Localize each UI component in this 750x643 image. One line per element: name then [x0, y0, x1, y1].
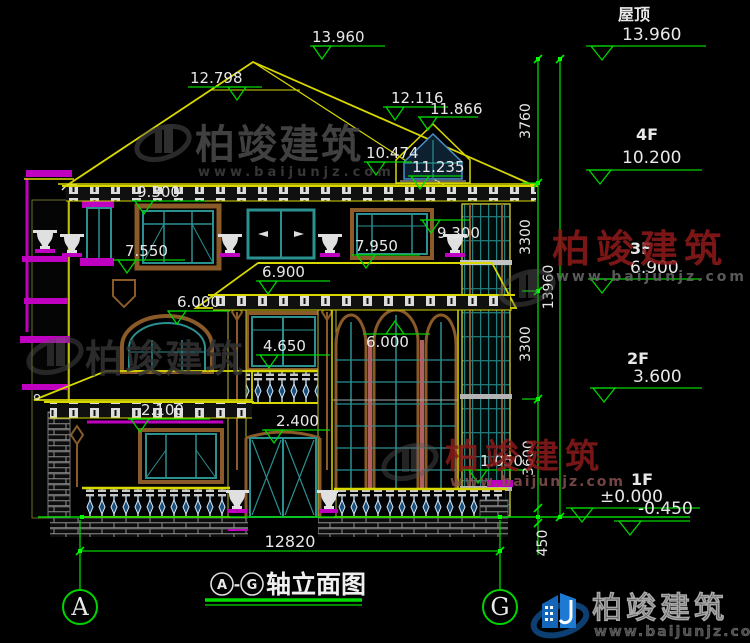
- mark-value: 6.000: [366, 333, 409, 351]
- mark-value: 6.000: [177, 293, 220, 311]
- watermark-brand: 柏竣建筑: [85, 337, 245, 381]
- mark-value: 9.300: [437, 224, 480, 242]
- mark-value: 11.866: [430, 100, 483, 118]
- title-axis-start: A: [217, 578, 227, 593]
- cad-background: [0, 0, 750, 643]
- vdim-3760: 3760: [518, 103, 534, 139]
- watermark-brand: 柏竣建筑: [445, 437, 605, 477]
- title-axis-end: G: [247, 578, 258, 593]
- elevation-drawing: 13.960 12.798 12.116 11.866 10.474 11.23…: [0, 0, 750, 643]
- mark-value: 12.798: [190, 69, 243, 87]
- mark-value: 2.100: [141, 401, 184, 419]
- juliet-balustrade: [236, 371, 328, 403]
- mark-value: 13.960: [312, 28, 365, 46]
- vdim-450: 450: [535, 530, 551, 557]
- watermark-brand: 柏竣建筑: [195, 122, 363, 168]
- mark-value: 6.900: [262, 263, 305, 281]
- mark-value: 11.235: [412, 158, 465, 176]
- vdim-3300-lower: 3300: [518, 326, 534, 362]
- level-value-below: -0.450: [638, 499, 693, 519]
- title-text: 轴立面图: [266, 570, 366, 599]
- mark-value: 4.650: [263, 337, 306, 355]
- mark-value: 7.550: [125, 242, 168, 260]
- level-label: 4F: [636, 125, 658, 144]
- axis-letter: A: [70, 593, 89, 621]
- level-label: 屋顶: [618, 5, 650, 24]
- footer-brand-logo: 柏竣建筑 www.baijunjz.com: [530, 591, 750, 641]
- mark-value: 9.300: [137, 183, 180, 201]
- watermark-url: www.baijunjz.com: [198, 165, 395, 180]
- mark-value: 10.474: [366, 144, 419, 162]
- watermark-url: www.baijunjz.com: [556, 269, 747, 285]
- magenta-cornice: [26, 170, 72, 177]
- watermark-brand: 柏竣建筑: [552, 227, 728, 271]
- level-label: 2F: [627, 349, 649, 368]
- mark-value: 2.400: [276, 412, 319, 430]
- level-value: 10.200: [622, 148, 681, 168]
- footer-brand-url: www.baijunjz.com: [594, 624, 750, 640]
- main-eave-band: [58, 184, 540, 201]
- level-value: 13.960: [622, 25, 681, 45]
- title-axis-separator: -: [234, 575, 241, 594]
- bottom-dim-value: 12820: [265, 532, 316, 551]
- level-value: 3.600: [633, 367, 682, 387]
- vdim-3300-upper: 3300: [518, 219, 534, 255]
- axis-letter: G: [490, 593, 509, 621]
- mark-value: 7.950: [355, 237, 398, 255]
- footer-brand-text: 柏竣建筑: [592, 591, 728, 626]
- watermark-url: www.baijunjz.com: [450, 474, 625, 490]
